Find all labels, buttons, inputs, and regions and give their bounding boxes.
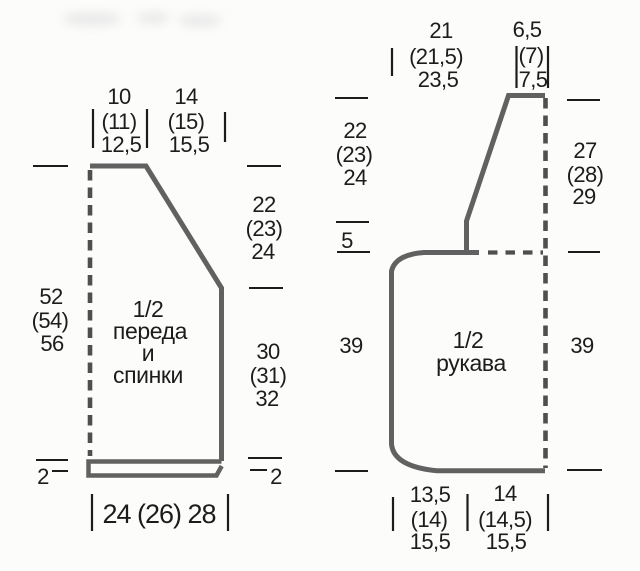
sl-bottom-a-line3: 15,5: [410, 529, 451, 554]
sl-right-upper-line3: 29: [572, 184, 596, 209]
sl-bottom-b-line1: 14: [493, 481, 517, 506]
fb-top-width-a-line3: 12,5: [101, 132, 142, 157]
sl-top-width-line1: 21: [429, 18, 453, 43]
front-back-piece: 10 (11) 12,5 14 (15) 15,5 22 (23) 24 52 …: [32, 84, 287, 531]
fb-right-lower-line2: (31): [250, 363, 287, 388]
sl-cap-width-line1: 6,5: [513, 17, 542, 42]
sl-cap-width-line2: (7): [518, 43, 543, 68]
sl-right-lower: 39: [570, 333, 594, 358]
fb-label-line4: спинки: [113, 362, 183, 388]
sl-cap-width-line3: 7,5: [519, 67, 548, 92]
sl-bottom-b-line3: 15,5: [486, 529, 527, 554]
sl-top-width-line2: (21,5): [409, 44, 463, 69]
fb-top-width-b-line1: 14: [174, 84, 198, 109]
sl-left-lower: 39: [339, 333, 363, 358]
fb-hem-right: 2: [270, 464, 282, 489]
sleeve-piece: 21 (21,5) 23,5 6,5 (7) 7,5 22 (23) 24 5 …: [335, 17, 603, 554]
fb-top-width-b-line3: 15,5: [169, 132, 210, 157]
sl-left-upper-line1: 22: [343, 118, 367, 143]
sl-right-upper-line1: 27: [573, 138, 597, 163]
fb-right-upper-line2: (23): [246, 216, 283, 241]
fb-top-width-a-line1: 10: [107, 84, 131, 109]
fb-right-lower-line1: 30: [256, 339, 280, 364]
sl-top-width-line3: 23,5: [418, 67, 459, 92]
fb-left-side-line2: (54): [32, 308, 69, 333]
fb-left-side-line3: 56: [40, 331, 64, 356]
fb-right-lower-line3: 32: [255, 386, 279, 411]
fb-hem-left: 2: [37, 464, 49, 489]
sl-bottom-a-line1: 13,5: [410, 482, 451, 507]
sl-label-line2: рукава: [436, 350, 506, 376]
fb-bottom-width: 24 (26) 28: [102, 499, 215, 529]
fb-right-upper-line3: 24: [251, 239, 275, 264]
sl-left-upper-line2: (23): [336, 142, 373, 167]
schematic-canvas: 10 (11) 12,5 14 (15) 15,5 22 (23) 24 52 …: [0, 0, 640, 571]
pattern-diagram: 10 (11) 12,5 14 (15) 15,5 22 (23) 24 52 …: [0, 0, 640, 571]
fb-left-side-line1: 52: [39, 284, 63, 309]
fb-top-width-b-line2: (15): [168, 109, 205, 134]
front-back-hem-band: [89, 462, 222, 476]
fb-right-upper-line1: 22: [252, 192, 276, 217]
sl-left-small: 5: [341, 228, 353, 253]
sleeve-outline: [392, 96, 546, 471]
sl-left-upper-line3: 24: [343, 165, 367, 190]
fb-top-width-a-line2: (11): [101, 109, 136, 134]
